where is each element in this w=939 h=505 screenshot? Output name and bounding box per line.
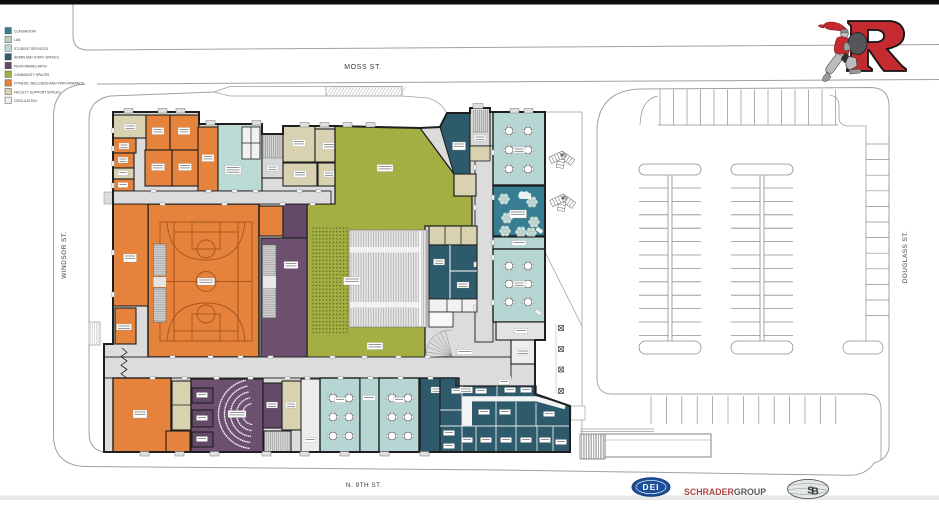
- svg-text:ADMIN AND STAFF SPACES: ADMIN AND STAFF SPACES: [14, 56, 59, 60]
- svg-text:MOSS ST.: MOSS ST.: [344, 64, 381, 71]
- svg-text:FACULTY SUPPORT SPACES: FACULTY SUPPORT SPACES: [14, 90, 61, 94]
- svg-text:STUDENT SERVICES: STUDENT SERVICES: [14, 47, 49, 51]
- svg-text:PERFORMING ARTS: PERFORMING ARTS: [14, 64, 47, 68]
- svg-text:CLASSROOM: CLASSROOM: [14, 30, 36, 34]
- svg-text:COMMUNITY SPACES: COMMUNITY SPACES: [14, 73, 50, 77]
- svg-text:LAB: LAB: [14, 38, 21, 42]
- svg-text:FITNESS, WELLNESS AND PERFORMA: FITNESS, WELLNESS AND PERFORMANCE: [14, 82, 85, 86]
- svg-text:N. 9TH ST.: N. 9TH ST.: [346, 482, 382, 489]
- svg-text:DOUGLASS ST.: DOUGLASS ST.: [902, 231, 909, 284]
- svg-text:SB: SB: [807, 485, 819, 498]
- svg-text:WINDSOR ST.: WINDSOR ST.: [61, 231, 68, 278]
- svg-text:SCHRADERGROUP: SCHRADERGROUP: [684, 487, 766, 497]
- svg-text:CIRCULATION: CIRCULATION: [14, 99, 37, 103]
- svg-text:DEI: DEI: [643, 482, 660, 492]
